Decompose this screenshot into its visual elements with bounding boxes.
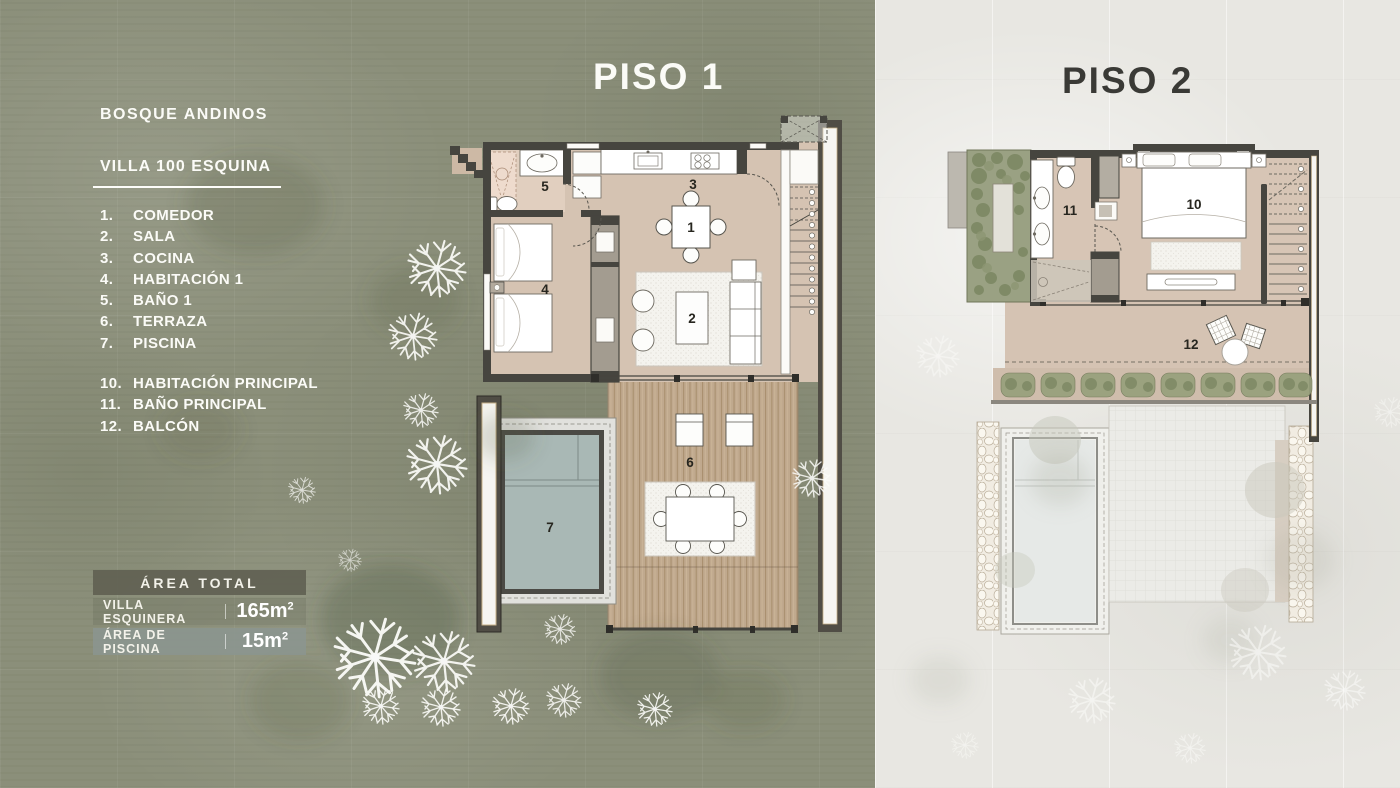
upper-balcony-outline: [781, 116, 827, 142]
legend-label: BALCÓN: [133, 416, 200, 437]
legend-label: SALA: [133, 226, 175, 247]
floor-plan-piso-1: 5 3 1 4 2 6 7: [450, 112, 850, 642]
room-label-sala: 2: [688, 311, 696, 326]
legend-label: HABITACIÓN 1: [133, 269, 243, 290]
room-label-habitacion-1: 4: [541, 282, 549, 297]
legend-number: 4.: [100, 269, 133, 290]
legend-item: 7. PISCINA: [100, 333, 318, 354]
shower-icon: [488, 152, 516, 204]
legend-item: 10. HABITACIÓN PRINCIPAL: [100, 373, 318, 394]
toilet-icon: [488, 197, 517, 212]
legend-number: 11.: [100, 394, 133, 415]
floorplan-poster: 5 3 1 4 2 6 7: [0, 0, 1400, 788]
sink-icon: [520, 150, 564, 176]
area-row-label: VILLA ESQUINERA: [103, 598, 219, 626]
divider: [225, 604, 226, 619]
legend-label: PISCINA: [133, 333, 197, 354]
legend-number: 5.: [100, 290, 133, 311]
left-planter: [948, 150, 1031, 302]
living-window-wall: [781, 150, 790, 374]
balcony-floor: [1005, 302, 1317, 368]
project-title: BOSQUE ANDINOS: [100, 106, 268, 124]
left-planter-wall: [477, 396, 501, 632]
legend-number: 6.: [100, 311, 133, 332]
area-row-label: ÁREA DE PISCINA: [103, 628, 219, 656]
area-row-piscina: ÁREA DE PISCINA 15m2: [93, 628, 306, 655]
area-table: ÁREA TOTAL VILLA ESQUINERA 165m2 ÁREA DE…: [93, 570, 306, 655]
center-wall: [591, 216, 619, 382]
room-legend: 1. COMEDOR 2. SALA 3. COCINA 4. HABITACI…: [100, 205, 318, 437]
legend-item: 5. BAÑO 1: [100, 290, 318, 311]
piso-2-title: PISO 2: [1062, 60, 1193, 102]
legend-label: BAÑO PRINCIPAL: [133, 394, 267, 415]
legend-group-piso2: 10. HABITACIÓN PRINCIPAL 11. BAÑO PRINCI…: [100, 373, 318, 437]
room-label-cocina: 3: [689, 177, 697, 192]
legend-number: 7.: [100, 333, 133, 354]
legend-number: 1.: [100, 205, 133, 226]
divider: [225, 634, 226, 649]
legend-item: 12. BALCÓN: [100, 416, 318, 437]
piso-1-title: PISO 1: [593, 56, 724, 98]
shower-icon: [1031, 260, 1091, 302]
room-label-comedor: 1: [687, 220, 695, 235]
legend-item: 4. HABITACIÓN 1: [100, 269, 318, 290]
room-label-habitacion-principal: 10: [1186, 197, 1201, 212]
right-window-wall: [1312, 156, 1317, 436]
legend-item: 3. COCINA: [100, 248, 318, 269]
room-label-piscina: 7: [546, 520, 554, 535]
kitchen-counter: [601, 148, 737, 174]
room-label-balcon: 12: [1183, 337, 1198, 352]
living-room: [632, 260, 762, 366]
right-window-wall: [818, 120, 842, 632]
area-row-value: 15m2: [232, 630, 298, 653]
legend-label: COCINA: [133, 248, 195, 269]
legend-label: COMEDOR: [133, 205, 214, 226]
double-sink-icon: [1031, 160, 1053, 258]
room-label-bano-1: 5: [541, 179, 549, 194]
bottom-edge-wall: [991, 400, 1317, 404]
legend-item: 11. BAÑO PRINCIPAL: [100, 394, 318, 415]
room-label-bano-principal: 11: [1063, 203, 1078, 218]
legend-item: 6. TERRAZA: [100, 311, 318, 332]
toilet-icon: [1057, 157, 1075, 188]
floor-plan-piso-2: 11 10 12: [945, 140, 1365, 700]
legend-number: 2.: [100, 226, 133, 247]
legend-item: 1. COMEDOR: [100, 205, 318, 226]
room-label-terraza: 6: [686, 455, 694, 470]
legend-item: 2. SALA: [100, 226, 318, 247]
legend-label: HABITACIÓN PRINCIPAL: [133, 373, 318, 394]
area-row-villa: VILLA ESQUINERA 165m2: [93, 598, 306, 625]
legend-label: TERRAZA: [133, 311, 207, 332]
area-table-header: ÁREA TOTAL: [93, 570, 306, 595]
legend-label: BAÑO 1: [133, 290, 192, 311]
villa-title: VILLA 100 ESQUINA: [93, 158, 281, 188]
area-row-value: 165m2: [232, 600, 298, 623]
legend-number: 10.: [100, 373, 133, 394]
legend-number: 12.: [100, 416, 133, 437]
legend-number: 3.: [100, 248, 133, 269]
ghost-level-below: [977, 406, 1313, 634]
